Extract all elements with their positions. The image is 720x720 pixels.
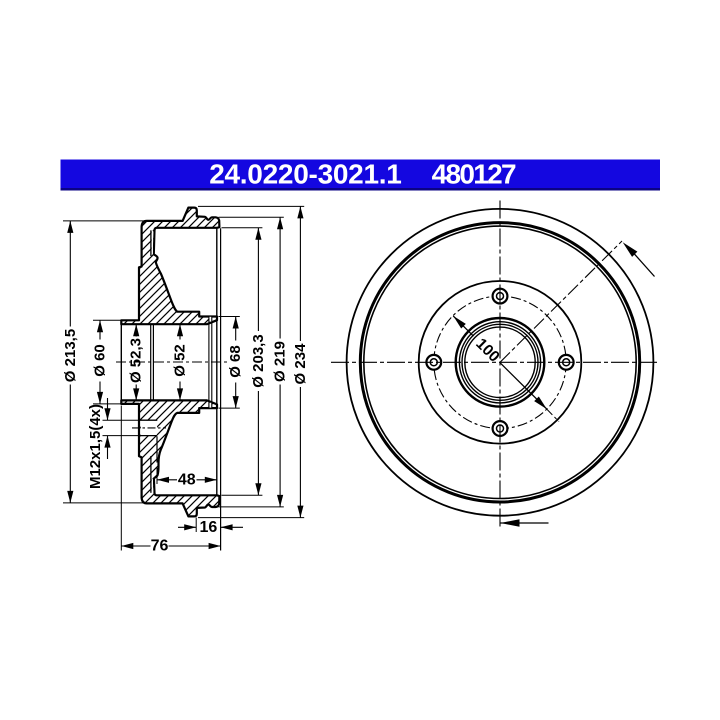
svg-text:Ø 60: Ø 60 — [92, 344, 109, 377]
svg-text:16: 16 — [200, 519, 218, 536]
svg-text:24.0220-3021.1: 24.0220-3021.1 — [209, 159, 401, 190]
svg-text:Ø 234: Ø 234 — [292, 343, 309, 385]
svg-text:Ø 52,3: Ø 52,3 — [128, 338, 145, 383]
svg-text:Ø 68: Ø 68 — [227, 345, 244, 378]
svg-text:Ø 213,5: Ø 213,5 — [62, 329, 79, 382]
svg-text:480127: 480127 — [432, 159, 516, 190]
svg-text:76: 76 — [151, 538, 169, 555]
svg-text:Ø 52: Ø 52 — [172, 344, 189, 377]
svg-text:Ø 203,3: Ø 203,3 — [250, 334, 267, 387]
svg-text:M12x1,5(4x): M12x1,5(4x) — [87, 404, 104, 489]
svg-text:48: 48 — [178, 471, 196, 488]
svg-text:Ø 219: Ø 219 — [272, 341, 289, 382]
